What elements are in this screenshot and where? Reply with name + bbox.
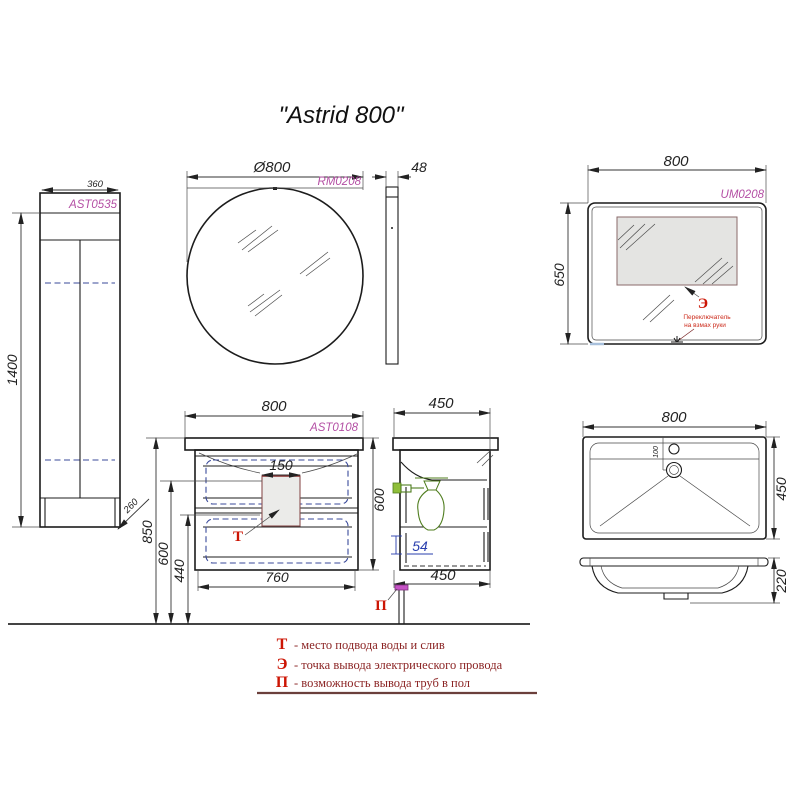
dim-vanity-bottom-width: 760 [265,569,289,585]
legend-row: Т - место подвода воды и слив [277,636,445,653]
clearance-dimension: 54 [391,536,433,554]
electric-marker: Э [698,296,708,312]
dim-sink-width: 800 [661,409,687,426]
dim-tall-cabinet-width: 360 [87,179,104,190]
dim-vanity-box-height: 600 [371,488,387,512]
vanity-side-view: 54 450 450 П [375,395,498,624]
faucet-hole [669,444,679,454]
water-marker: Т [233,529,243,545]
round-mirror-view: Ø800 RM0208 48 [187,159,427,364]
drain-hole [667,463,682,478]
sensor-icon [671,336,683,342]
rect-mirror-view: 800 650 UM0208 Э Переключатель на взмах … [551,153,766,344]
vanity-front-view: 800 150 760 600 850 600 440 AST0108 Т [139,398,387,624]
dim-tall-cabinet-height: 1400 [4,354,20,385]
light-panel [617,217,737,285]
sink-side-view [580,558,768,599]
legend-symbol: Т [277,636,288,653]
dim-round-mirror-diameter: Ø800 [253,159,291,176]
dim-height-to-top: 850 [139,520,155,544]
rect-mirror-code: UM0208 [721,189,765,201]
tall-cabinet-dimensions: 360 1400 260 [4,179,149,529]
dim-sink-height: 220 [773,569,789,594]
legend-row: Э - точка вывода электрического провода [277,656,503,673]
dim-side-depth-bottom: 450 [430,567,456,584]
siphon-drawing [393,478,448,530]
dim-tall-cabinet-depth: 260 [121,496,141,516]
dim-vanity-width: 800 [261,398,287,415]
dim-mirror-thickness: 48 [411,159,427,175]
legend-text: - возможность вывода труб в пол [294,676,470,690]
specification-sheet: "Astrid 800" 360 1400 260 AST0535 [0,0,800,800]
legend-text: - точка вывода электрического провода [294,658,503,672]
round-mirror-glints [238,226,330,316]
floor-pipe: П [375,585,408,624]
tall-cabinet-structure [40,193,120,527]
dim-clearance: 54 [412,538,428,554]
sink-top-view: 100 [583,437,766,539]
dim-rect-mirror-height: 650 [551,263,567,287]
vanity-side-structure [393,438,498,570]
electric-annotation: Э Переключатель на взмах руки [590,287,731,344]
title-block: "Astrid 800" [278,102,405,129]
legend-symbol: П [276,674,289,691]
dim-sink-depth: 450 [773,477,789,501]
round-mirror-code: RM0208 [318,176,362,188]
dim-side-depth-top: 450 [428,395,454,412]
round-mirror-dimensions: Ø800 [187,159,363,262]
sink-dimensions: 800 450 220 [583,409,789,603]
round-mirror-outline [187,188,363,364]
round-mirror-side-view: 48 [372,159,427,364]
dim-height-mid: 600 [155,542,171,566]
dim-height-low: 440 [171,559,187,583]
dim-siphon-cutout: 150 [269,457,293,473]
tall-cabinet-code: AST0535 [68,199,118,211]
dim-drain-offset: 100 [653,446,660,458]
legend: Т - место подвода воды и слив Э - точка … [257,636,537,693]
vanity-code: AST0108 [309,422,359,434]
switch-note-line1: Переключатель [683,314,731,321]
switch-note-line2: на взмах руки [684,322,726,329]
dim-rect-mirror-width: 800 [663,153,689,170]
page-title: "Astrid 800" [278,102,405,129]
legend-row: П - возможность вывода труб в пол [276,674,470,691]
legend-text: - место подвода воды и слив [294,638,445,652]
tall-cabinet-view: 360 1400 260 AST0535 [4,179,149,529]
drawing-canvas: "Astrid 800" 360 1400 260 AST0535 [0,0,800,800]
legend-symbol: Э [277,656,288,673]
mirror-top-tick [273,187,277,190]
pipe-marker: П [375,598,387,614]
sink-view: 100 800 450 220 [580,409,789,603]
